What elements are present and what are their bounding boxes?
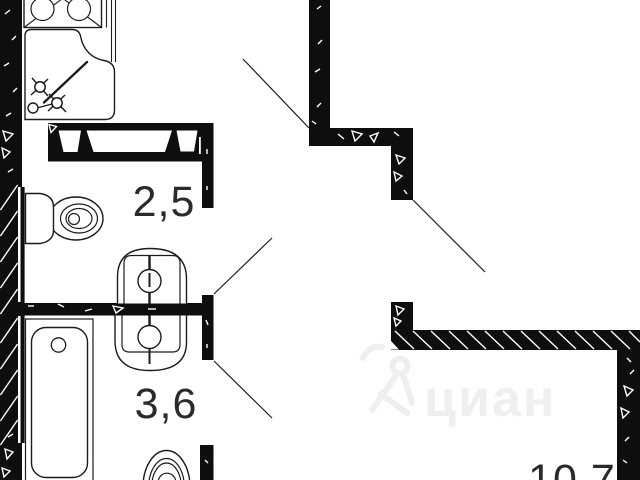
pedestal-sink-icon [115, 316, 187, 371]
wall-top-horizontal [309, 128, 413, 146]
floor-plan-drawing: циан 2,5 3,6 10,7 [0, 0, 640, 480]
room-area-label-wc: 2,5 [133, 178, 196, 226]
brand-logo-icon [363, 347, 412, 413]
door-swing-line [243, 59, 309, 128]
wall-top-vertical [309, 0, 330, 128]
brand-watermark-text: циан [424, 370, 556, 428]
wall-right [617, 350, 640, 480]
room-area-label-bathroom: 3,6 [135, 380, 198, 428]
door-swing-line [214, 361, 272, 418]
wall-bath-right-top [202, 123, 214, 208]
toilet-icon [26, 194, 104, 244]
floor-plan: циан 2,5 3,6 10,7 [0, 0, 640, 480]
pedestal-sink-icon [118, 249, 187, 304]
door-swing-line [214, 238, 272, 294]
drain-icon [28, 103, 38, 113]
watermark: циан [363, 347, 556, 428]
door-swings [214, 59, 485, 418]
wall-room-divider [0, 303, 214, 316]
toilet-top-icon [143, 451, 190, 480]
room-area-label-living: 10,7 [528, 456, 616, 480]
door-swing-line [413, 200, 485, 272]
corner-counter-icon [25, 30, 115, 120]
bathtub-icon [26, 319, 94, 480]
wall-stub [391, 302, 413, 330]
